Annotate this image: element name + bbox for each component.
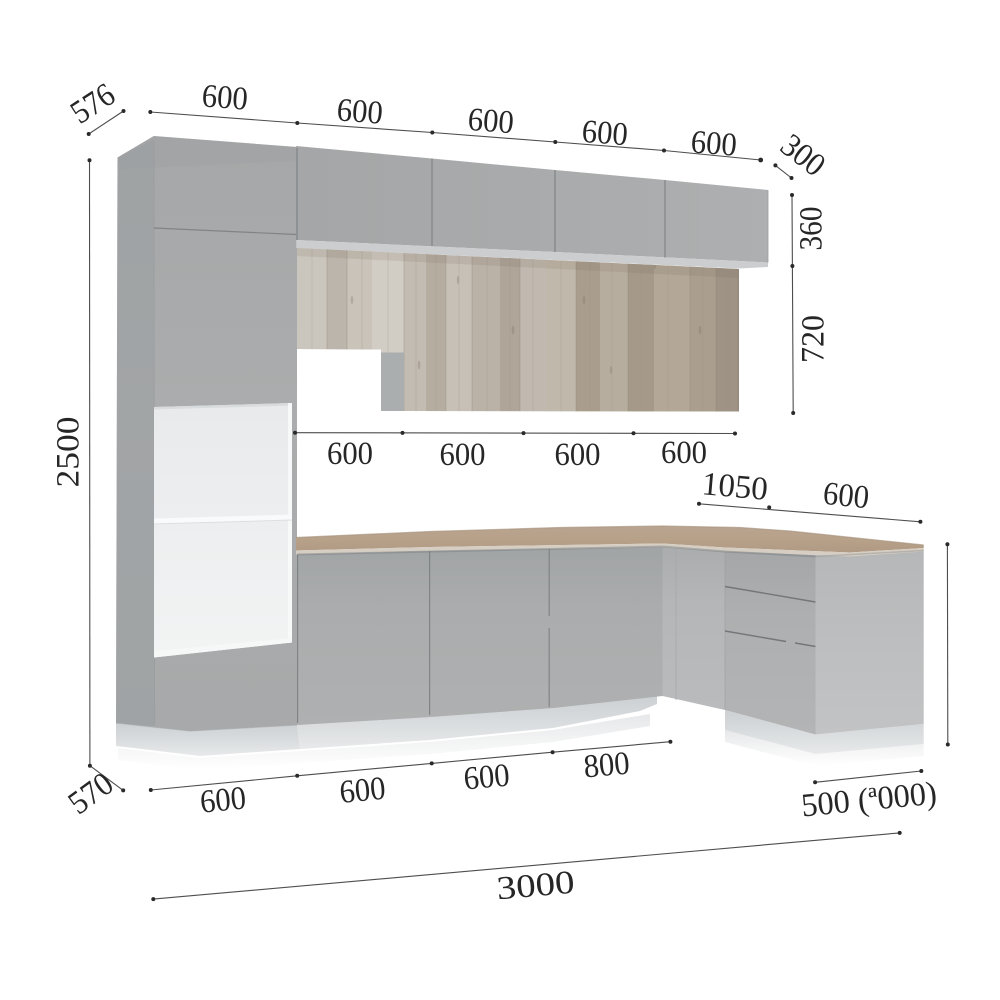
svg-text:600: 600 [440, 437, 486, 473]
svg-text:600: 600 [327, 436, 373, 472]
svg-text:720: 720 [796, 315, 832, 363]
svg-text:600: 600 [338, 771, 387, 811]
svg-text:600: 600 [555, 437, 601, 473]
svg-text:1050: 1050 [700, 466, 769, 508]
svg-text:600: 600 [466, 102, 515, 141]
svg-text:600: 600 [198, 780, 247, 820]
svg-text:600: 600 [689, 124, 738, 163]
svg-text:600: 600 [200, 78, 249, 117]
svg-text:600: 600 [335, 92, 384, 131]
svg-text:600: 600 [580, 114, 629, 153]
svg-text:600: 600 [821, 476, 871, 517]
svg-text:2500: 2500 [51, 417, 87, 488]
svg-text:600: 600 [462, 758, 511, 798]
svg-text:360: 360 [794, 207, 830, 251]
svg-text:3000: 3000 [495, 865, 576, 908]
svg-text:600: 600 [661, 435, 707, 471]
svg-text:800: 800 [582, 746, 631, 786]
